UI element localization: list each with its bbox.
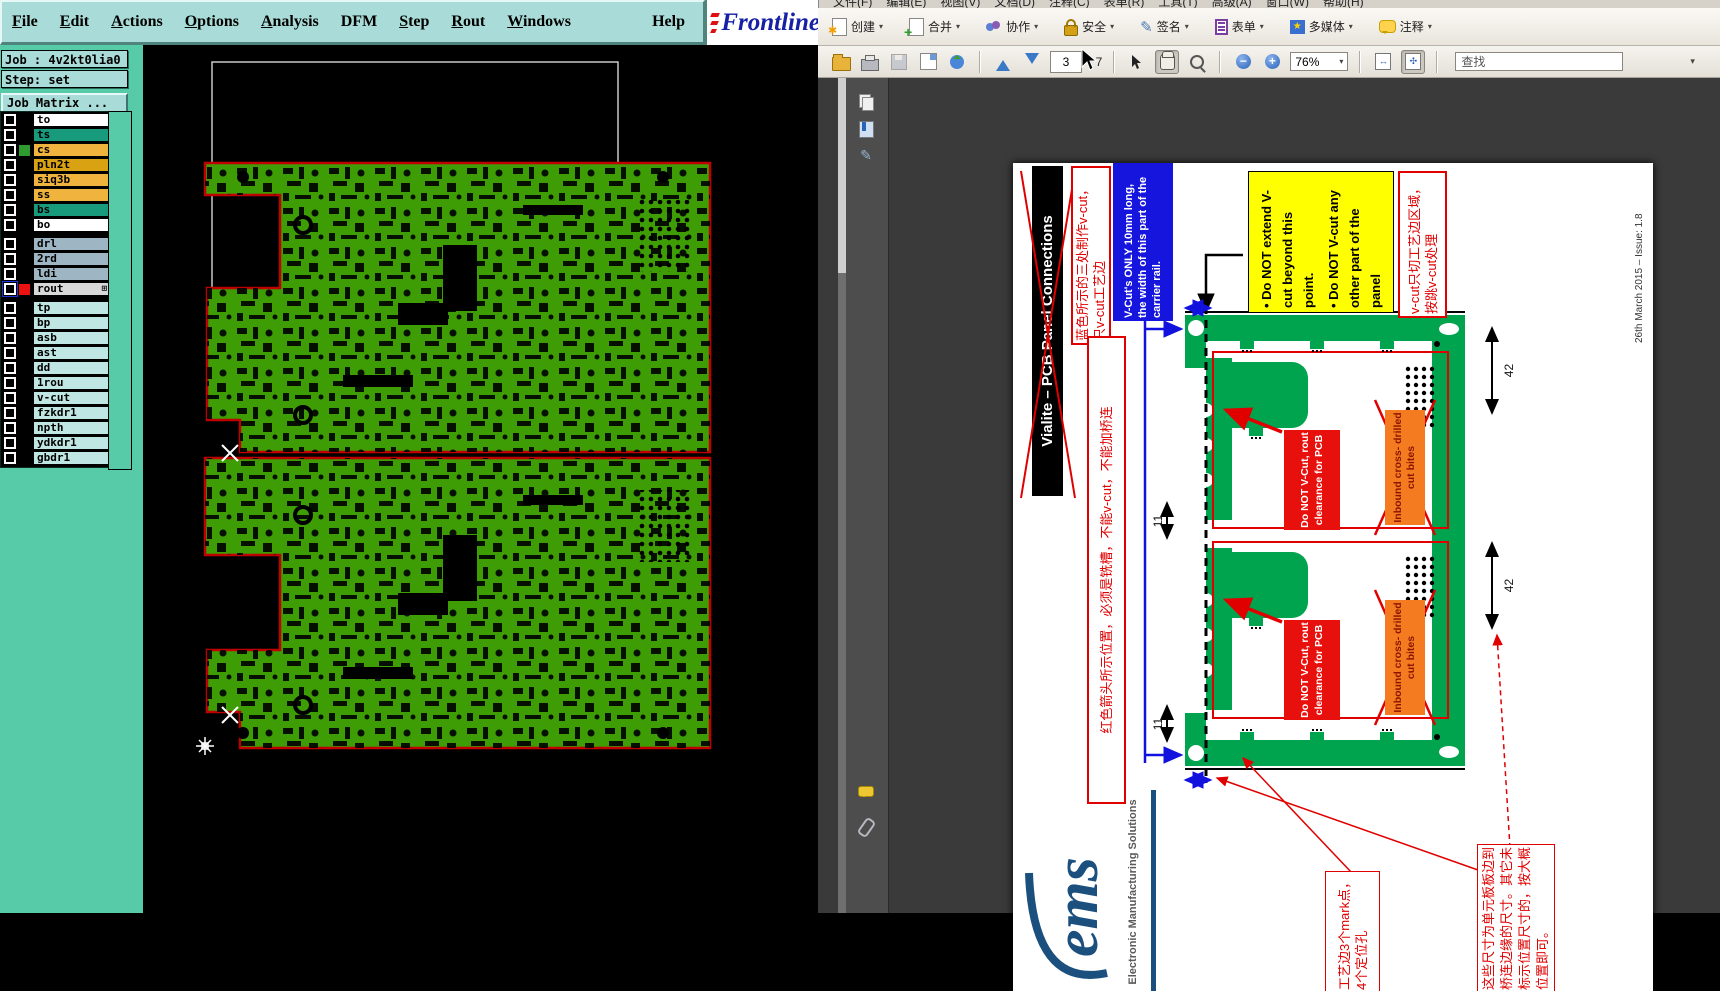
- layer-row-2rd[interactable]: 2rd: [2, 252, 109, 266]
- toolbar-separator: [1113, 51, 1115, 73]
- layer-row-ast[interactable]: ast: [2, 346, 109, 360]
- pcb-canvas-art: [143, 45, 818, 913]
- layer-checkbox[interactable]: [4, 159, 16, 171]
- menu-analysis[interactable]: Analysis: [261, 13, 319, 31]
- layer-grid-icon[interactable]: ⊞: [102, 283, 107, 295]
- layer-row-ts[interactable]: ts: [2, 128, 109, 142]
- layer-row-v-cut[interactable]: v-cut: [2, 391, 109, 405]
- layer-row-ss[interactable]: ss: [2, 188, 109, 202]
- layer-checkbox[interactable]: [4, 377, 16, 389]
- collaborate-icon: [986, 21, 1002, 33]
- layer-row-cs[interactable]: cs: [2, 143, 109, 157]
- layer-name[interactable]: ldi: [33, 267, 109, 281]
- lock-icon: [1064, 25, 1078, 36]
- pcb-board-top: [205, 163, 710, 452]
- layer-name[interactable]: pln2t: [33, 158, 109, 172]
- pdf-menu-file[interactable]: 文件(F): [833, 0, 872, 8]
- next-page-button[interactable]: [1021, 51, 1043, 73]
- banner-cross-out: [1021, 171, 1075, 498]
- pdf-menu-window[interactable]: 窗口(W): [1266, 0, 1309, 8]
- layer-name[interactable]: ast: [33, 346, 109, 360]
- layer-name[interactable]: npth: [33, 421, 109, 435]
- layer-row-bs[interactable]: bs: [2, 203, 109, 217]
- layer-row-1rou[interactable]: 1rou: [2, 376, 109, 390]
- email-icon: [920, 53, 937, 70]
- menu-actions[interactable]: Actions: [111, 13, 163, 31]
- fit-page-icon: ✣: [1405, 53, 1421, 70]
- pdf-task-toolbar: ✱创建▾ +合并▾ 协作▾ 安全▾ ✎签名▾ 表单▾ ★多媒体▾ 注释▾: [818, 8, 1720, 46]
- create-icon: ✱: [832, 18, 847, 36]
- attachments-panel-button[interactable]: [854, 816, 878, 838]
- layer-checkbox[interactable]: [4, 238, 16, 250]
- zoom-level-select[interactable]: 76%▾: [1290, 52, 1348, 71]
- layer-name[interactable]: tp: [33, 301, 109, 315]
- frontline-logo-text: Frontline: [721, 9, 820, 37]
- note-do-not-vcut-1: Do NOT V-Cut, rout clearance for PCB: [1284, 430, 1340, 530]
- pcb-canvas[interactable]: [143, 45, 818, 913]
- cam-sidebar: Job : 4v2kt0lia0 Step: set Job Matrix ..…: [0, 45, 143, 913]
- layer-name[interactable]: gbdr1: [33, 451, 109, 465]
- pdf-menu-advanced[interactable]: 高级(A): [1212, 0, 1252, 8]
- pdf-menu-bar: 文件(F) 编辑(E) 视图(V) 文档(D) 注释(C) 表单(R) 工具(T…: [818, 0, 1720, 8]
- tooling-hole: [1188, 745, 1204, 761]
- comments-panel-button[interactable]: [854, 780, 878, 802]
- menu-edit[interactable]: Edit: [60, 13, 89, 31]
- layer-name[interactable]: siq3b: [33, 173, 109, 187]
- layer-swatch: [19, 378, 30, 389]
- ems-logo-rule: [1151, 790, 1156, 991]
- layer-swatch: [19, 423, 30, 434]
- dropdown-icon: ▾: [879, 22, 883, 31]
- pdf-menu-document[interactable]: 文档(D): [994, 0, 1035, 8]
- layer-row-npth[interactable]: npth: [2, 421, 109, 435]
- layer-checkbox[interactable]: [4, 392, 16, 404]
- layer-checkbox[interactable]: [4, 219, 16, 231]
- layer-name[interactable]: to: [33, 113, 109, 127]
- sign-button[interactable]: ✎签名▾: [1140, 18, 1189, 36]
- open-folder-icon: [832, 57, 851, 71]
- layer-name-text: rout: [37, 283, 64, 295]
- dropdown-icon: ▾: [1428, 22, 1432, 31]
- zoom-in-icon: +: [1265, 54, 1280, 69]
- combine-icon: +: [909, 18, 924, 36]
- frontline-stripes-icon: [711, 13, 719, 33]
- forms-button[interactable]: 表单▾: [1215, 18, 1264, 35]
- splitter-thumb[interactable]: [838, 78, 846, 273]
- layer-row-asb[interactable]: asb: [2, 331, 109, 345]
- layer-checkbox[interactable]: [4, 189, 16, 201]
- layer-swatch: [19, 160, 30, 171]
- globe-icon: [950, 55, 964, 69]
- layer-checkbox[interactable]: [4, 317, 16, 329]
- signature-pen-icon: ✎: [860, 147, 872, 164]
- layer-name[interactable]: rout⊞: [33, 282, 109, 296]
- select-tool-button[interactable]: [1126, 51, 1148, 73]
- layer-swatch: [19, 254, 30, 265]
- dropdown-icon: ▾: [1260, 22, 1264, 31]
- layer-group-drill: drl 2rd ldi rout⊞: [2, 237, 109, 296]
- toolbar-separator: [1219, 51, 1221, 73]
- pdf-menu-edit[interactable]: 编辑(E): [886, 0, 926, 8]
- layer-row-tp[interactable]: tp: [2, 301, 109, 315]
- job-matrix-button[interactable]: Job Matrix ...: [1, 93, 128, 113]
- menu-windows[interactable]: Windows: [507, 13, 571, 31]
- menu-dfm[interactable]: DFM: [341, 13, 377, 31]
- dimension-42-bottom: 42: [1499, 558, 1519, 613]
- layer-checkbox[interactable]: [4, 253, 16, 265]
- layer-swatch: [19, 175, 30, 186]
- layer-name[interactable]: fzkdr1: [33, 406, 109, 420]
- hand-tool-button[interactable]: [1155, 50, 1179, 74]
- printer-icon: [861, 59, 879, 71]
- paperclip-icon: [856, 816, 876, 838]
- issue-date: 26th March 2015 – Issue: 1.8: [1629, 208, 1649, 343]
- toolbar-separator: [979, 51, 981, 73]
- find-label: 查找: [1461, 53, 1485, 70]
- upload-button[interactable]: [946, 51, 968, 73]
- layer-name[interactable]: dd: [33, 361, 109, 375]
- layer-row-fzkdr1[interactable]: fzkdr1: [2, 406, 109, 420]
- multimedia-button[interactable]: ★多媒体▾: [1290, 18, 1353, 35]
- layer-row-dd[interactable]: dd: [2, 361, 109, 375]
- layer-checkbox[interactable]: [4, 362, 16, 374]
- layer-name[interactable]: ss: [33, 188, 109, 202]
- find-dropdown-icon[interactable]: ▾: [1690, 56, 1695, 67]
- layer-name[interactable]: v-cut: [33, 391, 109, 405]
- find-input[interactable]: 查找: [1455, 52, 1623, 71]
- zoom-in-button[interactable]: +: [1261, 51, 1283, 73]
- layer-swatch: [19, 115, 30, 126]
- layer-swatch: [19, 269, 30, 280]
- yellow-note-arrow: [1206, 255, 1243, 311]
- signatures-panel-button[interactable]: ✎: [854, 144, 878, 166]
- pdf-menu-comments[interactable]: 注释(C): [1049, 0, 1090, 8]
- dropdown-icon: ▾: [956, 22, 960, 31]
- zoom-out-icon: −: [1236, 54, 1251, 69]
- layer-list-scrollbar[interactable]: [108, 111, 132, 470]
- bookmarks-panel-button[interactable]: [854, 118, 878, 140]
- yellow-bullet-2: • Do NOT V-cut any other part of the pan…: [1323, 176, 1386, 308]
- layer-swatch: [19, 284, 30, 295]
- down-arrow-icon: [1025, 53, 1039, 71]
- layer-name[interactable]: asb: [33, 331, 109, 345]
- layer-name[interactable]: drl: [33, 237, 109, 251]
- comment-button[interactable]: 注释▾: [1379, 18, 1432, 35]
- layer-checkbox[interactable]: [4, 204, 16, 216]
- cam-menu-bar: File Edit Actions Options Analysis DFM S…: [0, 0, 705, 45]
- layer-checkbox[interactable]: [4, 268, 16, 280]
- layer-swatch: [19, 393, 30, 404]
- layer-swatch: [19, 408, 30, 419]
- layer-checkbox[interactable]: [4, 174, 16, 186]
- secure-button[interactable]: 安全▾: [1064, 18, 1114, 36]
- layer-checkbox[interactable]: [4, 114, 16, 126]
- note-do-not-extend: • Do NOT extend V-cut beyond this point.…: [1248, 171, 1394, 313]
- layer-list: to ts cs pln2t siq3b ss bs bo drl 2rd ld…: [0, 111, 111, 468]
- bookmarks-icon: [859, 121, 874, 138]
- layer-swatch: [19, 348, 30, 359]
- layer-swatch: [19, 145, 30, 156]
- zoom-out-button[interactable]: −: [1232, 51, 1254, 73]
- nav-panel-strip: ✎: [846, 78, 889, 913]
- pdf-page[interactable]: Vialite – PCB Panel Connections: [1013, 163, 1653, 991]
- create-button[interactable]: ✱创建▾: [832, 18, 883, 36]
- pdf-document-area: ✎ Vialite – PCB Panel Connections: [818, 78, 1720, 913]
- layer-checkbox[interactable]: [4, 144, 16, 156]
- layer-name[interactable]: bo: [33, 218, 109, 232]
- dropdown-icon: ▾: [1110, 22, 1114, 31]
- layer-row-to[interactable]: to: [2, 113, 109, 127]
- menu-file[interactable]: File: [12, 13, 38, 31]
- fit-width-icon: ↔: [1375, 53, 1391, 70]
- layer-checkbox[interactable]: [4, 347, 16, 359]
- media-icon: ★: [1290, 20, 1305, 34]
- nav-pane-splitter[interactable]: [838, 78, 846, 913]
- frontline-logo: Frontline: [705, 0, 820, 45]
- pdf-nav-toolbar: / 7 − + 76%▾ ↔ ✣ 查找 ▾: [818, 46, 1720, 78]
- toolbar-separator: [1359, 51, 1361, 73]
- layer-name[interactable]: 2rd: [33, 252, 109, 266]
- dropdown-icon: ▾: [1339, 57, 1343, 66]
- open-button[interactable]: [830, 51, 852, 73]
- dimension-11-top: 11: [1149, 503, 1166, 539]
- ems-logo: ems: [1015, 793, 1115, 991]
- note-dimensions-cn: 这些尺寸为单元板板边到桥连边缘的尺寸。其它未标示位置尺寸的，按大概位置即可。: [1477, 844, 1555, 991]
- note-blue-vcut-cn: 蓝色所示的三处制作v-cut，只v-cut工艺边: [1071, 166, 1111, 345]
- layer-name[interactable]: ts: [33, 128, 109, 142]
- pdf-menu-view[interactable]: 视图(V): [940, 0, 980, 8]
- layer-row-drl[interactable]: drl: [2, 237, 109, 251]
- layer-checkbox[interactable]: [4, 283, 16, 295]
- layer-group-misc: tp bp asb ast dd 1rou v-cut fzkdr1 npth …: [2, 301, 109, 465]
- pdf-menu-tools[interactable]: 工具(T): [1158, 0, 1197, 8]
- note-vcut-length: V-Cut's ONLY 10mm long, the width of thi…: [1113, 163, 1173, 321]
- layer-name[interactable]: cs: [33, 143, 109, 157]
- marquee-zoom-button[interactable]: [1186, 51, 1208, 73]
- pcb-board-bottom: [205, 458, 710, 748]
- layer-checkbox[interactable]: [4, 437, 16, 449]
- comments-icon: [858, 786, 874, 797]
- pages-panel-button[interactable]: [854, 90, 878, 112]
- layer-swatch: [19, 453, 30, 464]
- layer-name[interactable]: ydkdr1: [33, 436, 109, 450]
- layer-swatch: [19, 363, 30, 374]
- layer-row-siq3b[interactable]: siq3b: [2, 173, 109, 187]
- layer-swatch: [19, 438, 30, 449]
- tooling-slot: [1439, 746, 1459, 758]
- layer-name[interactable]: bs: [33, 203, 109, 217]
- layer-name[interactable]: 1rou: [33, 376, 109, 390]
- previous-page-button[interactable]: [992, 51, 1014, 73]
- job-name-box: Job : 4v2kt0lia0: [1, 50, 128, 68]
- menu-options[interactable]: Options: [185, 13, 239, 31]
- form-icon: [1215, 19, 1228, 35]
- tooling-slot: [1439, 323, 1459, 335]
- dimension-11-bottom: 11: [1149, 706, 1166, 742]
- ems-logo-art: ems: [1015, 793, 1115, 991]
- layer-checkbox[interactable]: [4, 407, 16, 419]
- layer-checkbox[interactable]: [4, 302, 16, 314]
- layer-swatch: [19, 205, 30, 216]
- tooling-hole: [1188, 320, 1204, 336]
- combine-button[interactable]: +合并▾: [909, 18, 960, 36]
- layer-checkbox[interactable]: [4, 129, 16, 141]
- layer-row-bo[interactable]: bo: [2, 218, 109, 232]
- layer-group-board: to ts cs pln2t siq3b ss bs bo: [2, 113, 109, 232]
- pen-icon: ✎: [1140, 18, 1153, 36]
- pdf-viewer-window: 文件(F) 编辑(E) 视图(V) 文档(D) 注释(C) 表单(R) 工具(T…: [818, 0, 1720, 913]
- layer-swatch: [19, 130, 30, 141]
- layer-row-rout-selected[interactable]: rout⊞: [2, 282, 109, 296]
- menu-step[interactable]: Step: [399, 13, 429, 31]
- layer-checkbox[interactable]: [4, 332, 16, 344]
- pdf-menu-help[interactable]: 帮助(H): [1323, 0, 1364, 8]
- dropdown-icon: ▾: [1185, 22, 1189, 31]
- email-button[interactable]: [917, 51, 939, 73]
- dropdown-icon: ▾: [1034, 22, 1038, 31]
- zoom-level-value: 76%: [1295, 55, 1319, 69]
- layer-swatch: [19, 220, 30, 231]
- layer-row-ldi[interactable]: ldi: [2, 267, 109, 281]
- layer-name[interactable]: bp: [33, 316, 109, 330]
- svg-text:ems: ems: [1043, 857, 1111, 957]
- note-fiducials-cn: 工艺边3个mark点，4个定位孔: [1325, 871, 1380, 991]
- page-number-input[interactable]: [1050, 51, 1082, 73]
- menu-rout[interactable]: Rout: [451, 13, 485, 31]
- save-icon: [891, 54, 907, 70]
- layer-swatch: [19, 303, 30, 314]
- step-name-box: Step: set: [1, 70, 128, 88]
- layer-swatch: [19, 190, 30, 201]
- note-do-not-vcut-2: Do NOT V-Cut, rout clearance for PCB: [1284, 620, 1340, 720]
- pdf-menu-forms[interactable]: 表单(R): [1104, 0, 1145, 8]
- toolbar-separator: [1436, 51, 1438, 73]
- menu-help[interactable]: Help: [652, 13, 685, 31]
- comment-icon: [1379, 20, 1396, 33]
- pages-icon: [859, 94, 873, 109]
- note-inbound-bites-1: Inbound cross- drilled cut bites: [1385, 410, 1425, 525]
- note-inbound-bites-2: Inbound cross- drilled cut bites: [1385, 600, 1425, 715]
- yellow-bullet-1: • Do NOT extend V-cut beyond this point.: [1256, 176, 1319, 308]
- magnifier-icon: [1190, 55, 1204, 69]
- layer-row-pln2t[interactable]: pln2t: [2, 158, 109, 172]
- dropdown-icon: ▾: [1349, 22, 1353, 31]
- dimension-42-top: 42: [1499, 343, 1519, 398]
- select-cursor-icon: [1129, 54, 1145, 70]
- layer-row-ydkdr1[interactable]: ydkdr1: [2, 436, 109, 450]
- hand-icon: [1160, 53, 1175, 70]
- fit-width-button[interactable]: ↔: [1372, 51, 1394, 73]
- note-red-arrows-cn: 红色箭头所示位置，必须是铣槽，不能v-cut，不能加桥连: [1087, 336, 1126, 804]
- layer-row-gbdr1[interactable]: gbdr1: [2, 451, 109, 465]
- layer-swatch: [19, 318, 30, 329]
- collaborate-button[interactable]: 协作▾: [986, 18, 1038, 35]
- ems-caption: Electronic Manufacturing Solutions: [1117, 793, 1149, 991]
- up-arrow-icon: [996, 53, 1010, 71]
- layer-swatch: [19, 239, 30, 250]
- note-vcut-skip-cn: v-cut只切工艺边区域，按跳v-cut处理: [1398, 171, 1447, 318]
- mouse-cursor: [1080, 48, 1098, 72]
- layer-swatch: [19, 333, 30, 344]
- layer-checkbox[interactable]: [4, 422, 16, 434]
- save-button[interactable]: [888, 51, 910, 73]
- layer-row-bp[interactable]: bp: [2, 316, 109, 330]
- fit-page-button[interactable]: ✣: [1401, 50, 1425, 74]
- print-button[interactable]: [859, 51, 881, 73]
- layer-checkbox[interactable]: [4, 452, 16, 464]
